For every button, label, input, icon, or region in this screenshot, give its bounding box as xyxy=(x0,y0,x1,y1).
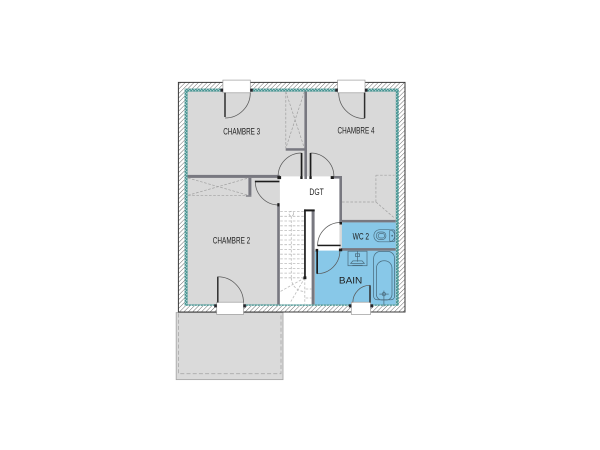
svg-text:CHAMBRE 4: CHAMBRE 4 xyxy=(338,126,375,136)
svg-text:BAIN: BAIN xyxy=(339,275,362,285)
svg-text:CHAMBRE 3: CHAMBRE 3 xyxy=(223,126,260,136)
svg-text:WC 2: WC 2 xyxy=(353,231,370,241)
svg-text:CHAMBRE 2: CHAMBRE 2 xyxy=(213,235,250,245)
svg-text:DGT: DGT xyxy=(309,187,324,197)
